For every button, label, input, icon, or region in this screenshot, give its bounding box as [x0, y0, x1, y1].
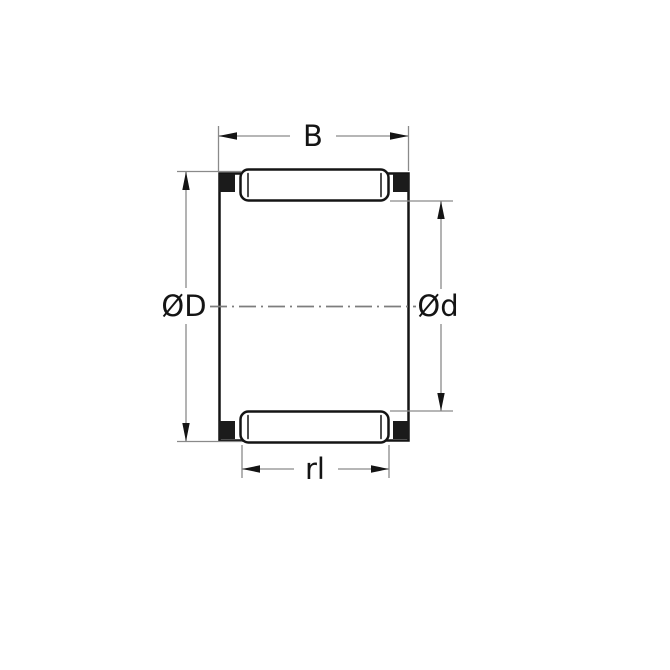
drawing-canvas: B ØD Ød — [0, 0, 670, 670]
arrowhead-b-right — [390, 132, 409, 140]
dimension-label-b: B — [303, 119, 323, 153]
dimension-b: B — [219, 119, 409, 171]
bearing-body — [210, 170, 416, 443]
needle-roller-bottom — [241, 412, 389, 443]
cage-end-bottom-right — [393, 421, 409, 439]
arrowhead-rl-right — [371, 465, 389, 472]
arrowhead-id-bottom — [437, 393, 444, 411]
cage-end-top-right — [393, 174, 409, 192]
dimension-roller-length: rl — [242, 445, 389, 486]
arrowhead-b-left — [219, 132, 238, 140]
dimension-label-inner-diameter: Ød — [417, 289, 458, 323]
dimension-label-roller-length: rl — [305, 452, 325, 486]
arrowhead-od-top — [182, 172, 189, 191]
arrowhead-id-top — [437, 201, 444, 219]
dimension-label-outer-diameter: ØD — [161, 289, 206, 323]
cage-end-bottom-left — [219, 421, 235, 439]
cage-end-top-left — [219, 174, 235, 192]
arrowhead-rl-left — [242, 465, 260, 472]
needle-roller-top — [241, 170, 389, 201]
arrowhead-od-bottom — [182, 423, 189, 442]
bearing-technical-drawing: B ØD Ød — [0, 0, 670, 670]
